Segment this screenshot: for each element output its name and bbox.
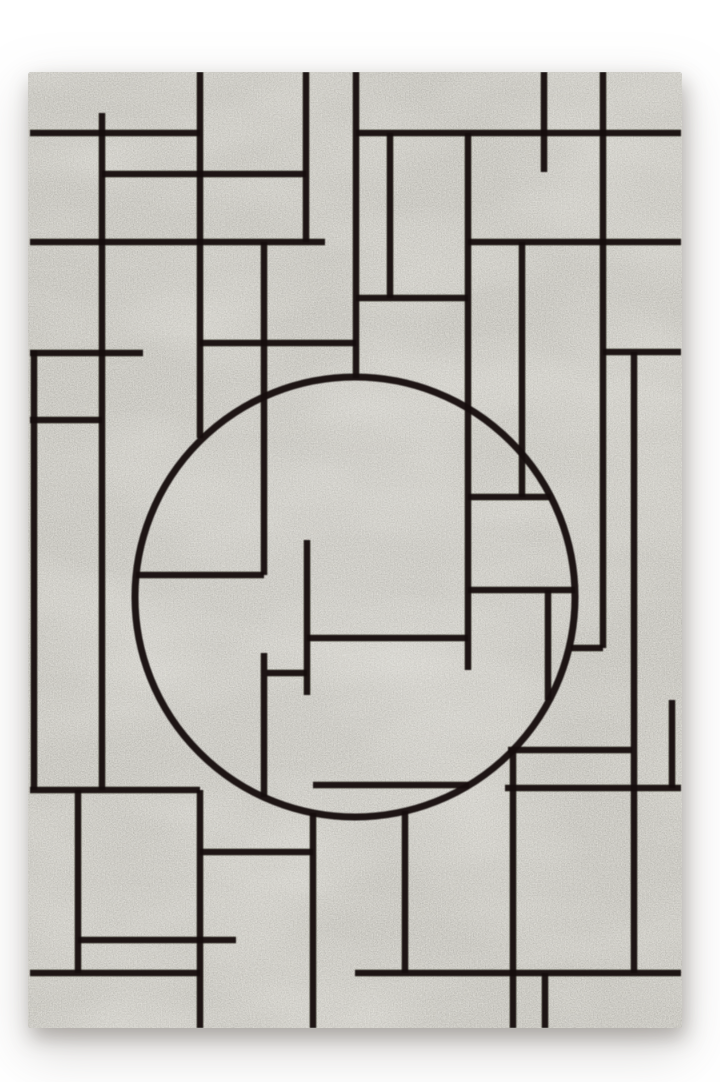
page: { "image": { "kind": "product-photo", "s… xyxy=(0,0,720,1082)
rug xyxy=(28,72,682,1028)
rug-pattern-svg xyxy=(0,0,720,1082)
product-photo xyxy=(0,0,720,1082)
